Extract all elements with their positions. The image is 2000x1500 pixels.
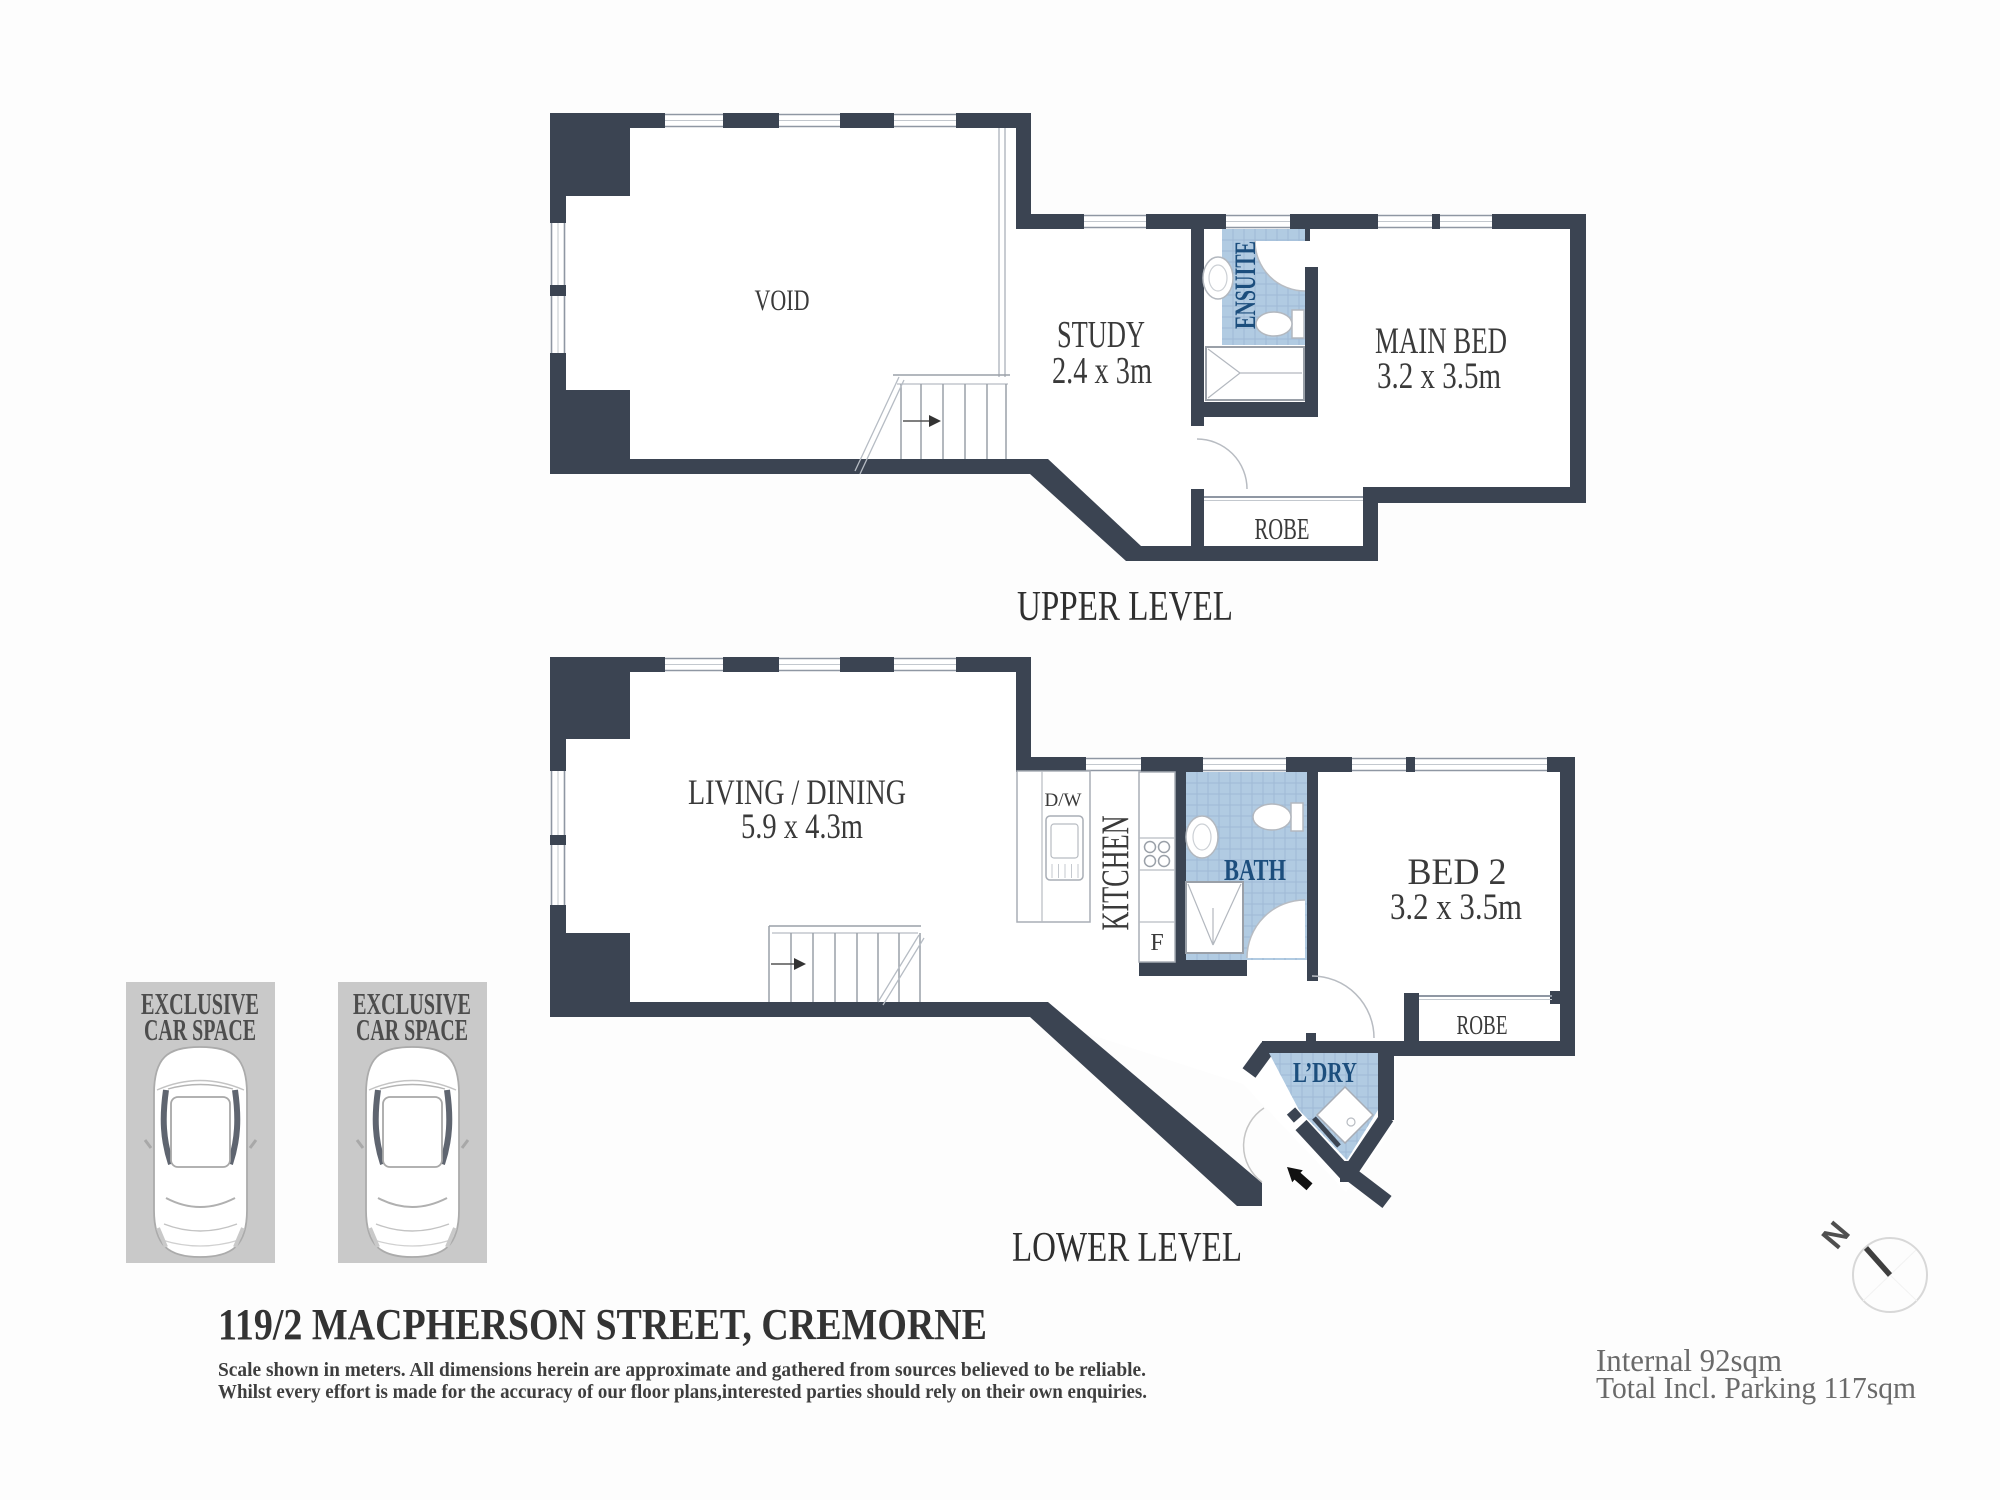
svg-text:UPPER LEVEL: UPPER LEVEL: [1017, 584, 1233, 630]
svg-text:CAR SPACE: CAR SPACE: [356, 1012, 468, 1047]
svg-text:Whilst every effort is made fo: Whilst every effort is made for the accu…: [218, 1381, 1147, 1403]
svg-text:LOWER LEVEL: LOWER LEVEL: [1012, 1225, 1242, 1271]
svg-text:Scale shown in meters. All dim: Scale shown in meters. All dimensions he…: [218, 1359, 1146, 1381]
svg-text:KITCHEN: KITCHEN: [1094, 816, 1137, 931]
svg-text:BATH: BATH: [1224, 852, 1286, 887]
svg-text:VOID: VOID: [755, 284, 810, 317]
svg-text:3.2 x 3.5m: 3.2 x 3.5m: [1377, 356, 1501, 397]
svg-text:ROBE: ROBE: [1255, 511, 1310, 546]
svg-text:ENSUITE: ENSUITE: [1229, 241, 1262, 329]
svg-text:Total Incl. Parking 117sqm: Total Incl. Parking 117sqm: [1596, 1370, 1916, 1405]
svg-text:D/W: D/W: [1045, 790, 1082, 811]
svg-text:ROBE: ROBE: [1457, 1010, 1508, 1040]
svg-text:F: F: [1150, 930, 1163, 956]
svg-text:L’DRY: L’DRY: [1293, 1057, 1357, 1089]
svg-text:3.2 x 3.5m: 3.2 x 3.5m: [1390, 887, 1522, 928]
svg-text:CAR SPACE: CAR SPACE: [144, 1012, 256, 1047]
svg-text:5.9 x 4.3m: 5.9 x 4.3m: [741, 806, 863, 846]
svg-text:119/2 MACPHERSON STREET, CREMO: 119/2 MACPHERSON STREET, CREMORNE: [218, 1300, 987, 1349]
svg-text:2.4 x 3m: 2.4 x 3m: [1052, 350, 1152, 392]
